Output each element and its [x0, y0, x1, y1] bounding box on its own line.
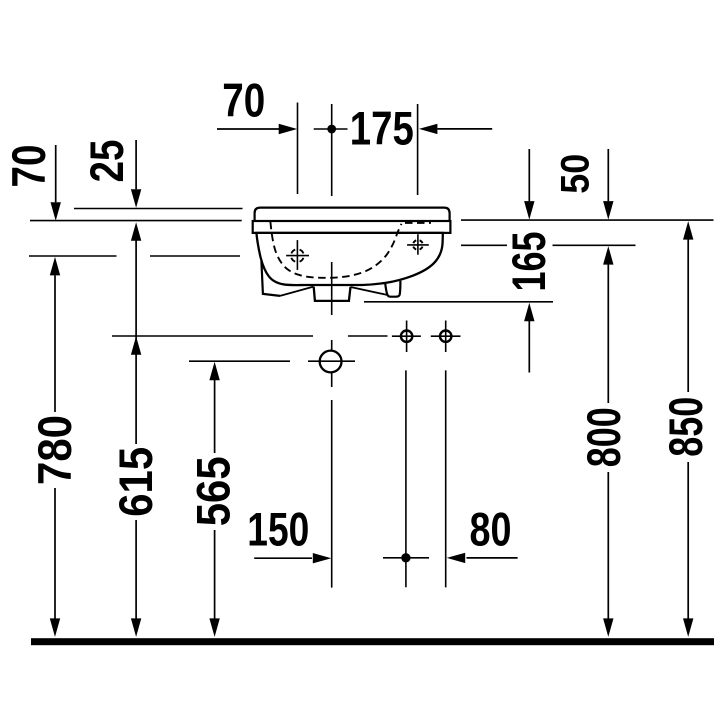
svg-text:165: 165	[502, 232, 555, 292]
svg-text:80: 80	[470, 503, 512, 556]
svg-text:25: 25	[80, 140, 133, 183]
svg-text:50: 50	[554, 154, 598, 194]
svg-text:800: 800	[577, 407, 630, 467]
svg-text:175: 175	[350, 102, 414, 155]
svg-text:70: 70	[2, 145, 55, 188]
svg-text:615: 615	[109, 447, 162, 517]
svg-text:150: 150	[247, 503, 309, 556]
svg-text:70: 70	[222, 74, 265, 127]
svg-text:565: 565	[187, 456, 240, 526]
svg-text:850: 850	[659, 397, 712, 457]
svg-text:780: 780	[28, 415, 81, 485]
